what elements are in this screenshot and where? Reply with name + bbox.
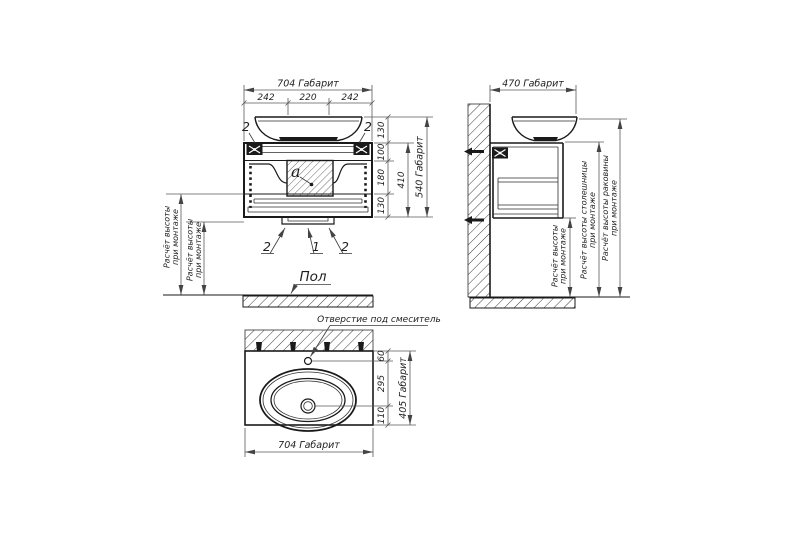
dim-width-right-label: 242 — [341, 93, 358, 103]
dim-height-total-label: 540 Габарит — [415, 136, 426, 198]
side-floor — [468, 297, 630, 308]
top-view: Отверстие под смеситель 60 295 — [245, 315, 441, 457]
front-plinth — [282, 217, 334, 224]
dim-top-depth-total-label: 405 Габарит — [398, 357, 409, 419]
dim-top-section-label: 100 — [377, 143, 387, 160]
callout-bottom-left: 2 — [263, 239, 271, 254]
side-view: 470 Габарит — [464, 79, 630, 309]
dim-drain-offset-label: 295 — [377, 375, 387, 392]
detail-a-label: a — [291, 162, 301, 181]
side-wall — [468, 104, 490, 297]
top-wall — [245, 330, 373, 351]
mount-note-b-line2: при монтаже — [194, 222, 203, 278]
front-view: 704 Габарит 242 220 242 130 100 180 — [163, 79, 434, 308]
front-dim-mount-heights: Расчёт высоты при монтаже Расчёт высоты … — [163, 194, 245, 295]
mount-note-a-line2: при монтаже — [171, 209, 180, 265]
callout-top-right: 2 — [364, 119, 372, 134]
front-cabinet — [244, 143, 372, 224]
side-note-height-line2: при монтаже — [559, 228, 568, 284]
dim-bottom-section-label: 130 — [377, 197, 387, 214]
side-dim-mount-heights: Расчёт высоты при монтаже Расчёт высоты … — [551, 119, 628, 297]
dim-cabinet-height-label: 410 — [397, 171, 407, 188]
faucet-hole-label: Отверстие под смеситель — [317, 315, 441, 325]
front-bracket-left — [247, 144, 263, 155]
dim-front-offset-label: 110 — [377, 407, 387, 424]
top-dim-width: 704 Габарит — [245, 428, 373, 457]
side-dim-depth: 470 Габарит — [490, 79, 576, 115]
front-sink-bowl — [255, 117, 362, 141]
front-callouts-bottom: 2 1 2 — [261, 228, 352, 254]
front-bracket-right — [354, 144, 370, 155]
dim-sink-height-label: 130 — [377, 121, 387, 138]
floor-hatch — [243, 296, 373, 307]
side-sink-bowl — [512, 117, 577, 141]
dim-faucet-offset-label: 60 — [377, 350, 387, 362]
side-bracket — [492, 148, 508, 159]
dim-top-width-total-label: 704 Габарит — [278, 440, 340, 451]
front-dim-heights: 130 100 180 130 410 540 Габарит — [364, 115, 433, 220]
dim-middle-section-label: 180 — [377, 169, 387, 186]
dim-depth-total-label: 470 Габарит — [502, 79, 564, 90]
side-note-countertop-line2: при монтаже — [588, 192, 597, 248]
callout-top-left: 2 — [242, 119, 250, 134]
drawing-sheet: 704 Габарит 242 220 242 130 100 180 — [0, 0, 800, 539]
floor-label: Пол — [299, 269, 326, 285]
side-drawer — [498, 178, 558, 209]
dim-width-center-label: 220 — [299, 93, 316, 103]
technical-drawing: 704 Габарит 242 220 242 130 100 180 — [0, 0, 800, 539]
dim-width-total-label: 704 Габарит — [277, 79, 339, 90]
side-note-sink-line2: при монтаже — [610, 180, 619, 236]
dim-width-left-label: 242 — [257, 93, 274, 103]
